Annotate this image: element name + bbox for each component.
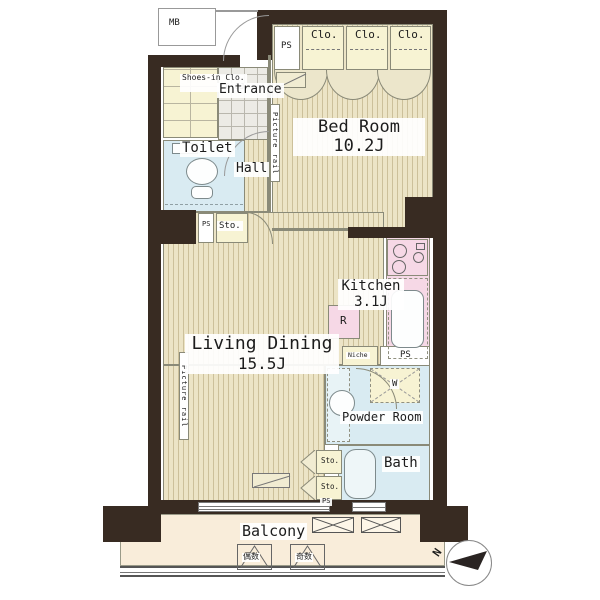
floorplan-canvas: Picture rail Picture rail 偶数 奇数 N MB PS …: [0, 0, 600, 600]
closet-3-label: Clo.: [396, 29, 427, 41]
ps-hall-label: PS: [200, 221, 212, 229]
picture-rail-bedroom: Picture rail: [270, 104, 280, 182]
compass: [446, 540, 492, 586]
stove: [387, 239, 428, 276]
closet-1-label: Clo.: [309, 29, 340, 41]
toilet-bowl: [186, 158, 218, 185]
toilet-tank: [191, 186, 213, 199]
niche-label: Niche: [346, 352, 370, 359]
balcony-rail: [120, 566, 445, 577]
balcony-window: [198, 502, 330, 512]
sto-lower-label: Sto.: [319, 483, 341, 491]
bedroom-label: Bed Room 10.2J: [293, 118, 425, 156]
wall-block-mid-left: [158, 210, 196, 244]
living-label: Living Dining 15.5J: [185, 334, 339, 374]
boundary-line-top: [216, 10, 258, 12]
living-size: 15.5J: [238, 354, 286, 373]
shoes-closet-name: Shoes-in Clo.: [182, 73, 245, 82]
washer-label: W: [390, 379, 399, 389]
wall-block-bottom-right: [420, 506, 468, 542]
toilet-label: Toilet: [180, 141, 235, 157]
hatch-even: 偶数: [237, 544, 272, 570]
balcony-label: Balcony: [240, 523, 307, 540]
hatch-odd: 奇数: [290, 544, 325, 570]
kitchen-size: 3.1J: [354, 294, 388, 310]
kitchen-label: Kitchen 3.1J: [338, 279, 404, 310]
wall-top: [262, 10, 447, 24]
louver-box-1: [312, 517, 354, 533]
wall-left: [148, 55, 161, 506]
bedroom-size: 10.2J: [333, 136, 384, 156]
sto-hall-label: Sto.: [217, 221, 243, 231]
bath-label: Bath: [382, 456, 420, 472]
hall-label: Hall: [234, 162, 269, 177]
hatch-odd-label: 奇数: [295, 553, 313, 562]
kitchen-name: Kitchen: [341, 278, 400, 294]
entrance-door-arc: [223, 15, 269, 61]
bath-window: [352, 502, 386, 512]
powder-room-label: Powder Room: [340, 411, 423, 424]
bifold-doors: [300, 450, 316, 500]
ps-top-label: PS: [279, 41, 294, 51]
bedroom-name: Bed Room: [318, 117, 400, 137]
refrigerator-label: R: [338, 315, 349, 327]
ps-bath-label: PS: [320, 498, 332, 506]
living-name: Living Dining: [192, 333, 333, 354]
closet-2-label: Clo.: [353, 29, 384, 41]
louver-box-2: [361, 517, 401, 533]
living-counter: [252, 473, 290, 488]
toilet-dash-line: [165, 204, 243, 205]
ps-kitchen-label: PS: [398, 350, 413, 360]
wall-block-bottom-left: [103, 506, 161, 542]
wall-right: [433, 10, 447, 506]
wall-kitchen-top: [348, 227, 433, 238]
hatch-even-label: 偶数: [242, 553, 260, 562]
entrance-label: Entrance: [217, 83, 284, 98]
mb-label: MB: [167, 18, 182, 28]
bathtub: [344, 449, 376, 499]
sto-upper-label: Sto.: [319, 457, 341, 465]
